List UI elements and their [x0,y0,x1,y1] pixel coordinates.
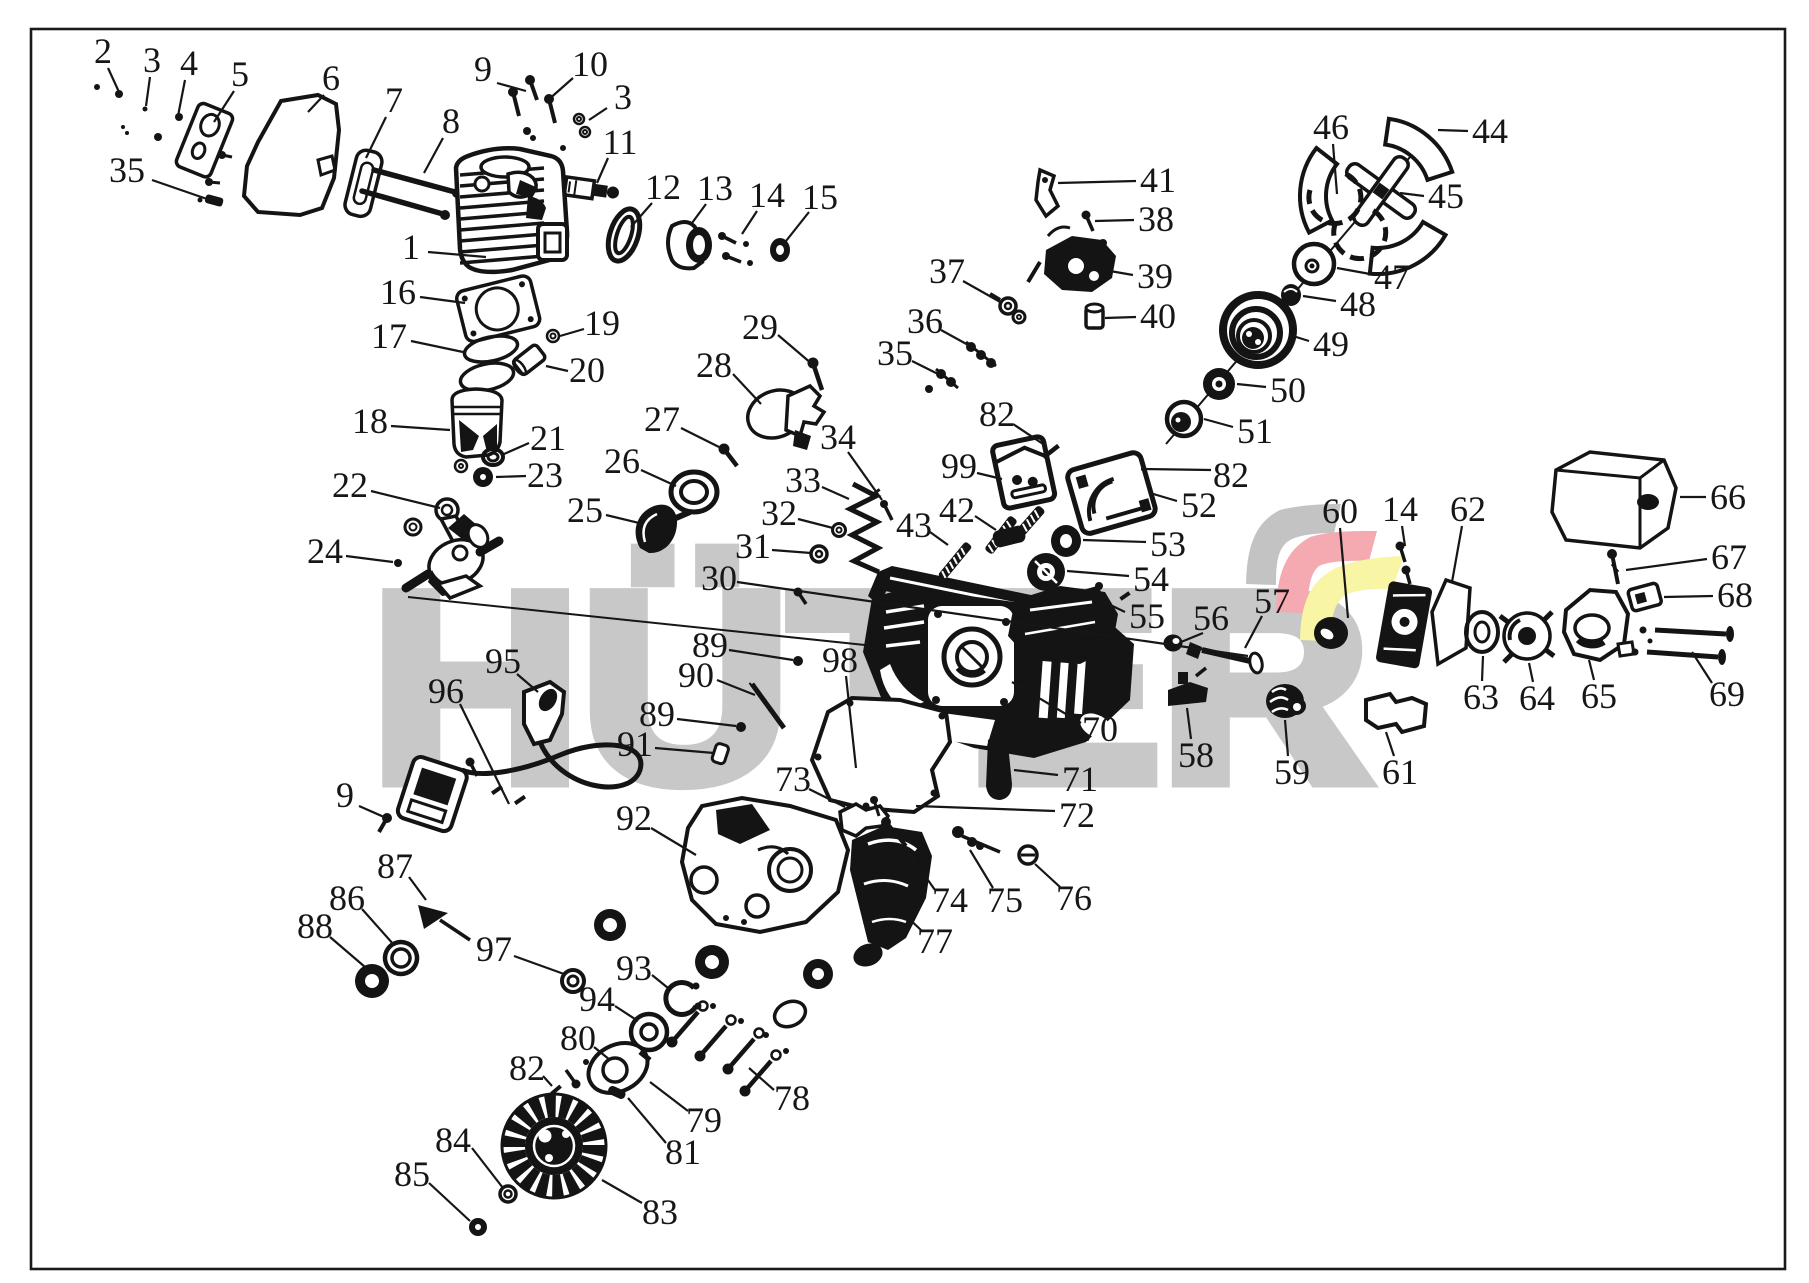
svg-text:58: 58 [1178,735,1214,775]
svg-text:37: 37 [929,251,965,291]
svg-text:53: 53 [1150,524,1186,564]
svg-text:38: 38 [1138,199,1174,239]
svg-text:74: 74 [932,880,968,920]
svg-text:62: 62 [1450,489,1486,529]
svg-text:51: 51 [1237,411,1273,451]
svg-text:5: 5 [231,54,249,94]
svg-text:48: 48 [1340,284,1376,324]
svg-text:91: 91 [617,724,653,764]
svg-text:45: 45 [1428,176,1464,216]
svg-text:71: 71 [1062,759,1098,799]
svg-text:50: 50 [1270,370,1306,410]
svg-text:24: 24 [307,531,343,571]
svg-text:87: 87 [377,846,413,886]
svg-text:66: 66 [1710,477,1746,517]
svg-text:31: 31 [735,526,771,566]
svg-text:97: 97 [476,929,512,969]
svg-text:16: 16 [380,272,416,312]
svg-text:19: 19 [584,303,620,343]
svg-text:43: 43 [896,505,932,545]
svg-text:13: 13 [697,168,733,208]
svg-text:3: 3 [143,40,161,80]
svg-text:70: 70 [1082,709,1118,749]
svg-text:82: 82 [979,394,1015,434]
svg-text:20: 20 [569,350,605,390]
svg-text:18: 18 [352,401,388,441]
svg-text:96: 96 [428,671,464,711]
svg-text:84: 84 [435,1120,471,1160]
svg-text:63: 63 [1463,677,1499,717]
svg-text:60: 60 [1322,491,1358,531]
svg-text:12: 12 [645,167,681,207]
svg-text:25: 25 [567,490,603,530]
svg-text:35: 35 [877,333,913,373]
svg-text:49: 49 [1313,324,1349,364]
svg-text:35: 35 [109,150,145,190]
svg-text:56: 56 [1193,598,1229,638]
svg-text:75: 75 [987,880,1023,920]
svg-text:22: 22 [332,465,368,505]
svg-text:55: 55 [1129,596,1165,636]
svg-text:44: 44 [1472,111,1508,151]
svg-text:93: 93 [616,948,652,988]
svg-text:40: 40 [1140,296,1176,336]
svg-text:52: 52 [1181,485,1217,525]
svg-text:65: 65 [1581,676,1617,716]
svg-text:4: 4 [180,43,198,83]
svg-text:11: 11 [603,122,638,162]
svg-text:9: 9 [474,49,492,89]
svg-text:69: 69 [1709,674,1745,714]
svg-text:42: 42 [939,490,975,530]
svg-text:95: 95 [485,641,521,681]
svg-text:6: 6 [322,58,340,98]
svg-text:14: 14 [1382,489,1418,529]
svg-text:77: 77 [917,921,953,961]
svg-text:57: 57 [1254,581,1290,621]
svg-text:2: 2 [94,31,112,71]
svg-text:83: 83 [642,1192,678,1232]
svg-text:92: 92 [616,798,652,838]
svg-text:86: 86 [329,878,365,918]
svg-text:34: 34 [820,417,856,457]
svg-text:90: 90 [678,655,714,695]
svg-text:3: 3 [614,77,632,117]
svg-text:54: 54 [1133,559,1169,599]
svg-text:23: 23 [527,455,563,495]
svg-text:21: 21 [530,418,566,458]
svg-text:81: 81 [665,1132,701,1172]
svg-text:67: 67 [1711,537,1747,577]
svg-text:39: 39 [1137,256,1173,296]
svg-text:14: 14 [749,175,785,215]
svg-text:72: 72 [1059,795,1095,835]
svg-text:94: 94 [579,979,615,1019]
svg-text:61: 61 [1382,752,1418,792]
svg-text:26: 26 [604,441,640,481]
svg-text:27: 27 [644,399,680,439]
svg-text:17: 17 [371,316,407,356]
svg-text:28: 28 [696,345,732,385]
svg-text:46: 46 [1313,107,1349,147]
svg-text:73: 73 [775,759,811,799]
svg-text:41: 41 [1140,160,1176,200]
svg-text:98: 98 [822,640,858,680]
svg-text:82: 82 [1213,455,1249,495]
svg-text:8: 8 [442,101,460,141]
svg-text:15: 15 [802,177,838,217]
svg-text:29: 29 [742,307,778,347]
svg-text:85: 85 [394,1154,430,1194]
svg-text:47: 47 [1374,257,1410,297]
svg-text:59: 59 [1274,752,1310,792]
svg-text:76: 76 [1056,878,1092,918]
svg-text:78: 78 [774,1078,810,1118]
svg-text:9: 9 [336,775,354,815]
svg-text:64: 64 [1519,678,1555,718]
svg-text:1: 1 [402,227,420,267]
svg-text:7: 7 [385,80,403,120]
svg-text:68: 68 [1717,575,1753,615]
svg-text:10: 10 [572,44,608,84]
svg-text:82: 82 [509,1048,545,1088]
svg-text:99: 99 [941,446,977,486]
svg-text:80: 80 [560,1018,596,1058]
svg-text:88: 88 [297,906,333,946]
svg-text:30: 30 [701,558,737,598]
